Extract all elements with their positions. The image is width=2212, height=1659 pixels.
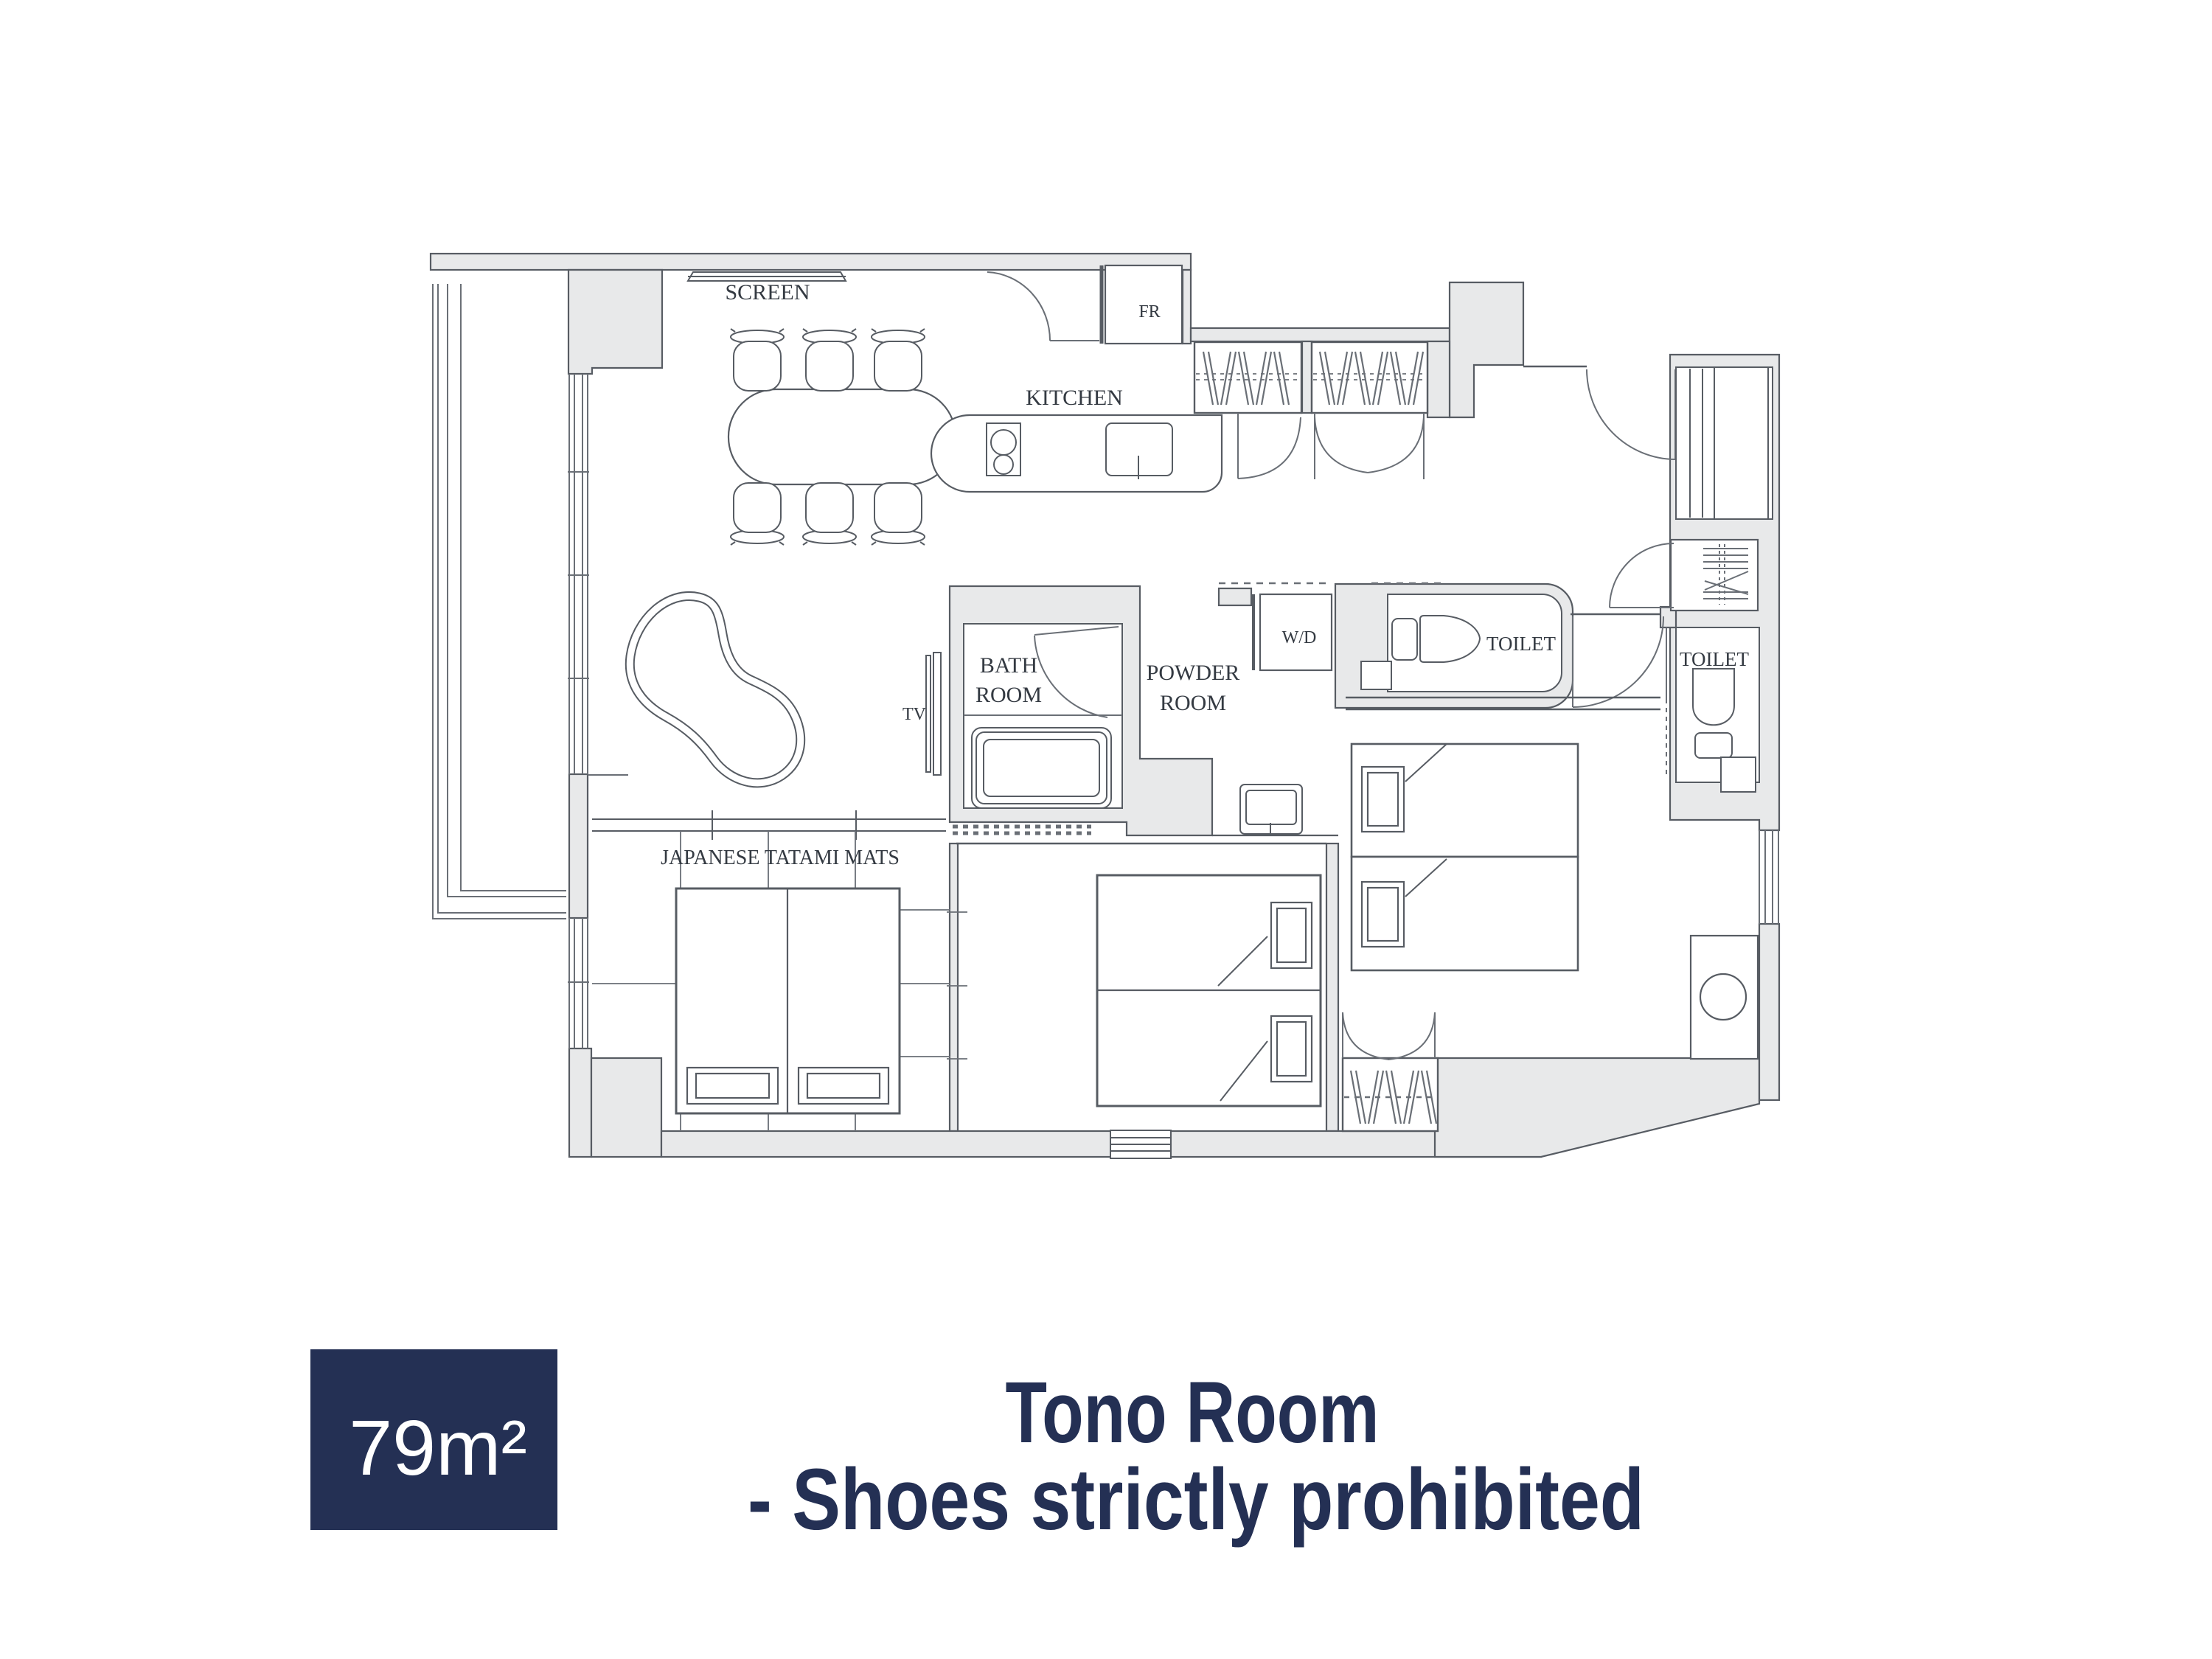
svg-text:POWDER: POWDER [1147,661,1240,685]
svg-text:FR: FR [1138,302,1160,321]
svg-text:KITCHEN: KITCHEN [1026,386,1123,410]
svg-text:- Shoes strictly prohibited: - Shoes strictly prohibited [748,1451,1644,1548]
svg-text:W/D: W/D [1282,628,1317,647]
svg-text:TV: TV [902,705,927,724]
svg-text:SCREEN: SCREEN [725,280,810,305]
svg-text:ROOM: ROOM [975,683,1042,707]
svg-text:Tono Room: Tono Room [1006,1364,1380,1461]
svg-text:TOILET: TOILET [1680,648,1749,670]
svg-text:ROOM: ROOM [1160,691,1226,715]
svg-text:JAPANESE TATAMI MATS: JAPANESE TATAMI MATS [661,846,900,869]
svg-text:TOILET: TOILET [1486,633,1556,655]
svg-text:BATH: BATH [980,653,1037,678]
svg-text:79m²: 79m² [349,1405,527,1492]
